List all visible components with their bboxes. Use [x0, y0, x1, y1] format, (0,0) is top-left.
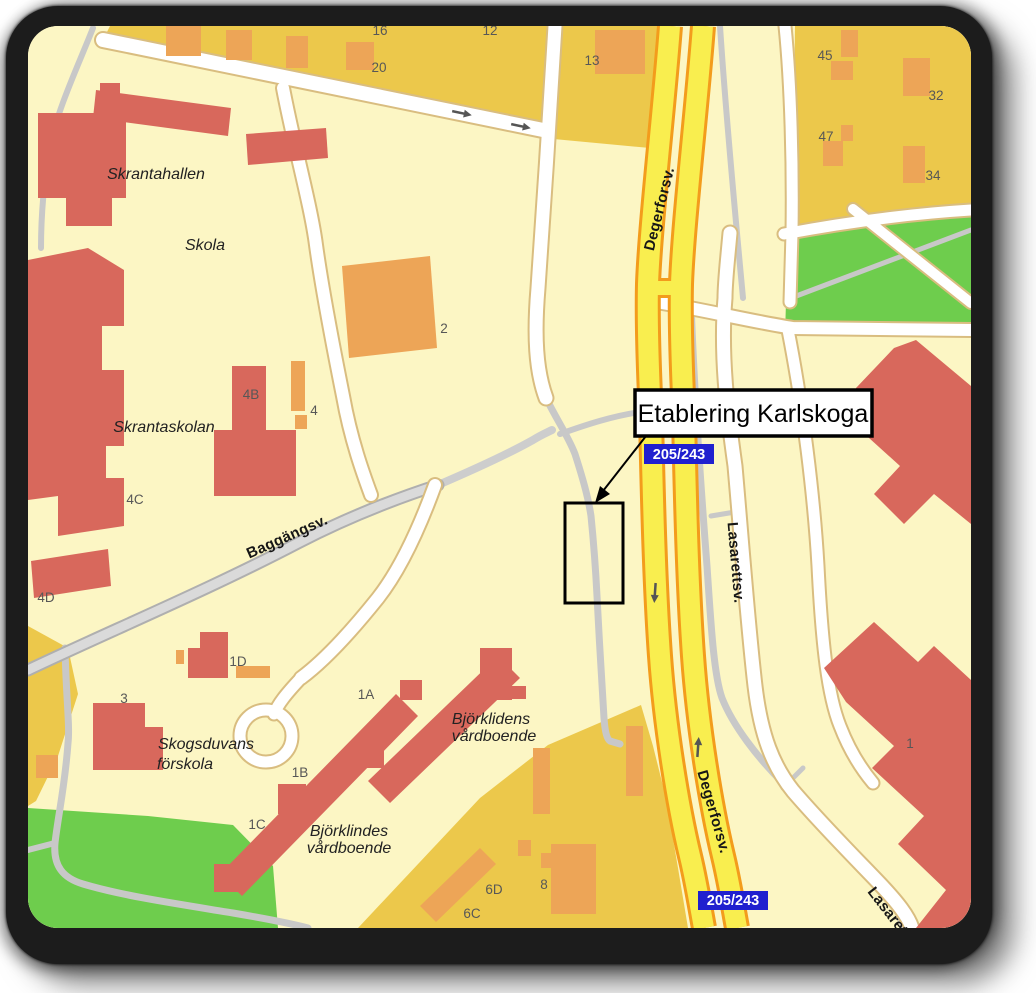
- map-svg: 16 12 20 13 45 32 47 34 2 4B 4 4C 4D 1D …: [28, 26, 971, 928]
- number-8: 8: [540, 877, 548, 892]
- building-skrantahallen: [38, 113, 126, 198]
- number-4: 4: [310, 403, 318, 418]
- building-4b-lower: [214, 430, 296, 496]
- place-label-skogsduvans-1: Skogsduvans: [158, 736, 254, 753]
- number-4b: 4B: [243, 387, 260, 402]
- building-13: [595, 30, 645, 74]
- route-badge-north-text: 205/243: [653, 447, 705, 463]
- annotation-label: Etablering Karlskoga: [638, 400, 869, 428]
- number-20: 20: [371, 60, 386, 75]
- number-13: 13: [584, 53, 599, 68]
- number-34: 34: [925, 168, 941, 183]
- building-2: [342, 256, 437, 358]
- place-label-skrantahallen: Skrantahallen: [107, 166, 205, 183]
- building-34: [903, 146, 925, 183]
- map-canvas[interactable]: 16 12 20 13 45 32 47 34 2 4B 4 4C 4D 1D …: [28, 26, 971, 928]
- building-45: [831, 61, 853, 80]
- place-label-bjorklidens-2: vårdboende: [452, 727, 537, 745]
- picture-frame: 16 12 20 13 45 32 47 34 2 4B 4 4C 4D 1D …: [6, 6, 992, 964]
- number-6d: 6D: [485, 882, 503, 897]
- route-badge-south-text: 205/243: [707, 893, 759, 909]
- number-32: 32: [928, 88, 943, 103]
- number-47: 47: [818, 129, 833, 144]
- number-1d: 1D: [229, 654, 247, 669]
- number-2: 2: [440, 321, 448, 336]
- place-label-bjorklindes-1: Björklindes: [310, 823, 388, 840]
- number-1b: 1B: [292, 765, 309, 780]
- place-label-bjorklidens-1: Björklidens: [452, 711, 530, 728]
- number-3: 3: [120, 691, 128, 706]
- number-4d: 4D: [37, 590, 55, 605]
- building-1d: [200, 632, 228, 678]
- place-label-skogsduvans-2: förskola: [157, 756, 213, 773]
- number-12: 12: [482, 26, 497, 38]
- number-1a: 1A: [358, 687, 375, 702]
- building-skrantaskolan: [28, 248, 124, 536]
- number-16: 16: [372, 26, 387, 38]
- place-label-skola: Skola: [185, 237, 225, 254]
- building-32: [903, 58, 930, 96]
- place-label-skrantaskolan: Skrantaskolan: [113, 419, 214, 436]
- number-6c: 6C: [463, 906, 481, 921]
- number-45: 45: [817, 48, 832, 63]
- building-47: [823, 141, 843, 166]
- number-1c: 1C: [248, 817, 266, 832]
- building-forskola-lower: [93, 727, 163, 770]
- place-label-bjorklindes-2: vårdboende: [307, 839, 392, 857]
- building-forskola-upper: [93, 703, 145, 731]
- building-8: [551, 844, 596, 914]
- number-1: 1: [906, 736, 914, 751]
- number-4c: 4C: [126, 492, 144, 507]
